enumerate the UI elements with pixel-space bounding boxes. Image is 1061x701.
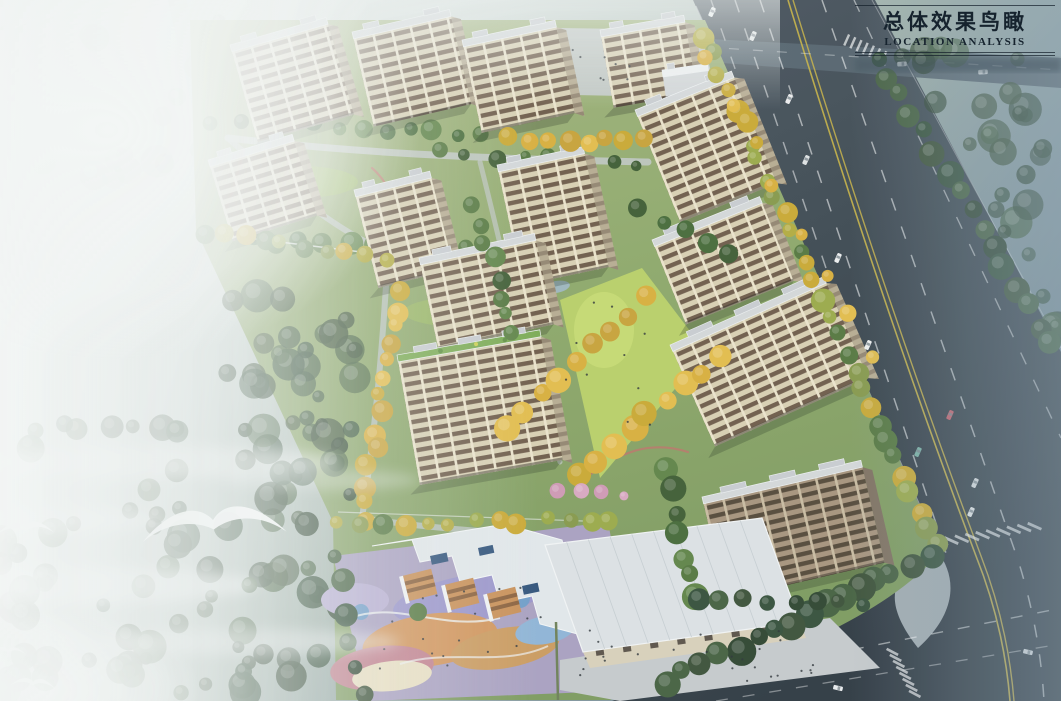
title-rule <box>855 52 1055 53</box>
aerial-rendering-scene <box>0 0 1061 701</box>
title-block: 总体效果鸟瞰 LOCATION ANALYSIS <box>855 5 1055 56</box>
page-title-en: LOCATION ANALYSIS <box>855 35 1055 49</box>
aerial-rendering-page: 总体效果鸟瞰 LOCATION ANALYSIS <box>0 0 1061 701</box>
title-rule <box>855 55 1055 56</box>
page-title-zh: 总体效果鸟瞰 <box>855 8 1055 35</box>
title-rule <box>855 5 1055 6</box>
tint <box>0 0 1061 701</box>
fog-overlay <box>0 0 1061 701</box>
